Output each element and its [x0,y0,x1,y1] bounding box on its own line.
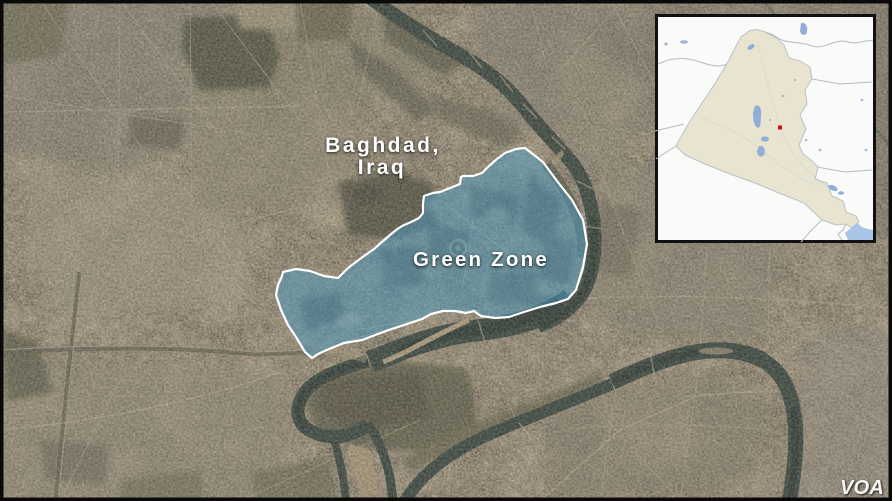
svg-text:Green Zone: Green Zone [413,248,549,271]
svg-text:Baghdad,: Baghdad, [325,134,441,157]
svg-text:Iraq: Iraq [358,156,407,179]
svg-text:VOA: VOA [840,477,884,499]
